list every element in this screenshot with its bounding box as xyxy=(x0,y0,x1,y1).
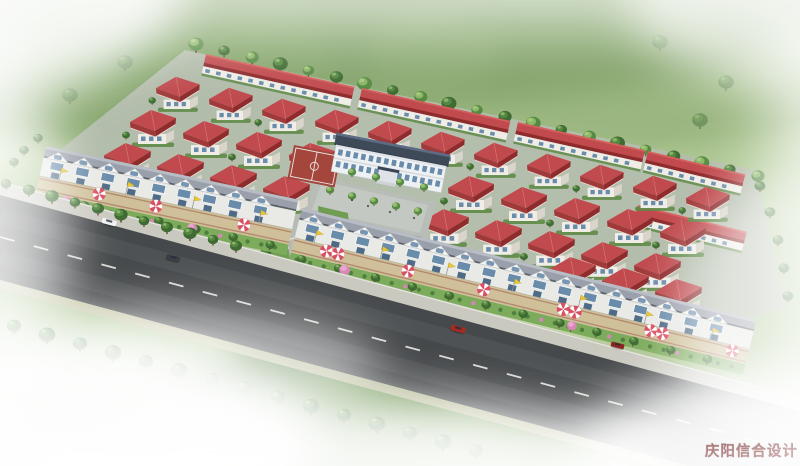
person xyxy=(367,205,369,207)
aerial-render: 庆阳信合设计 xyxy=(0,0,800,466)
person xyxy=(413,217,415,219)
person xyxy=(389,211,391,213)
aerial-scene xyxy=(0,0,800,466)
person xyxy=(351,199,353,201)
